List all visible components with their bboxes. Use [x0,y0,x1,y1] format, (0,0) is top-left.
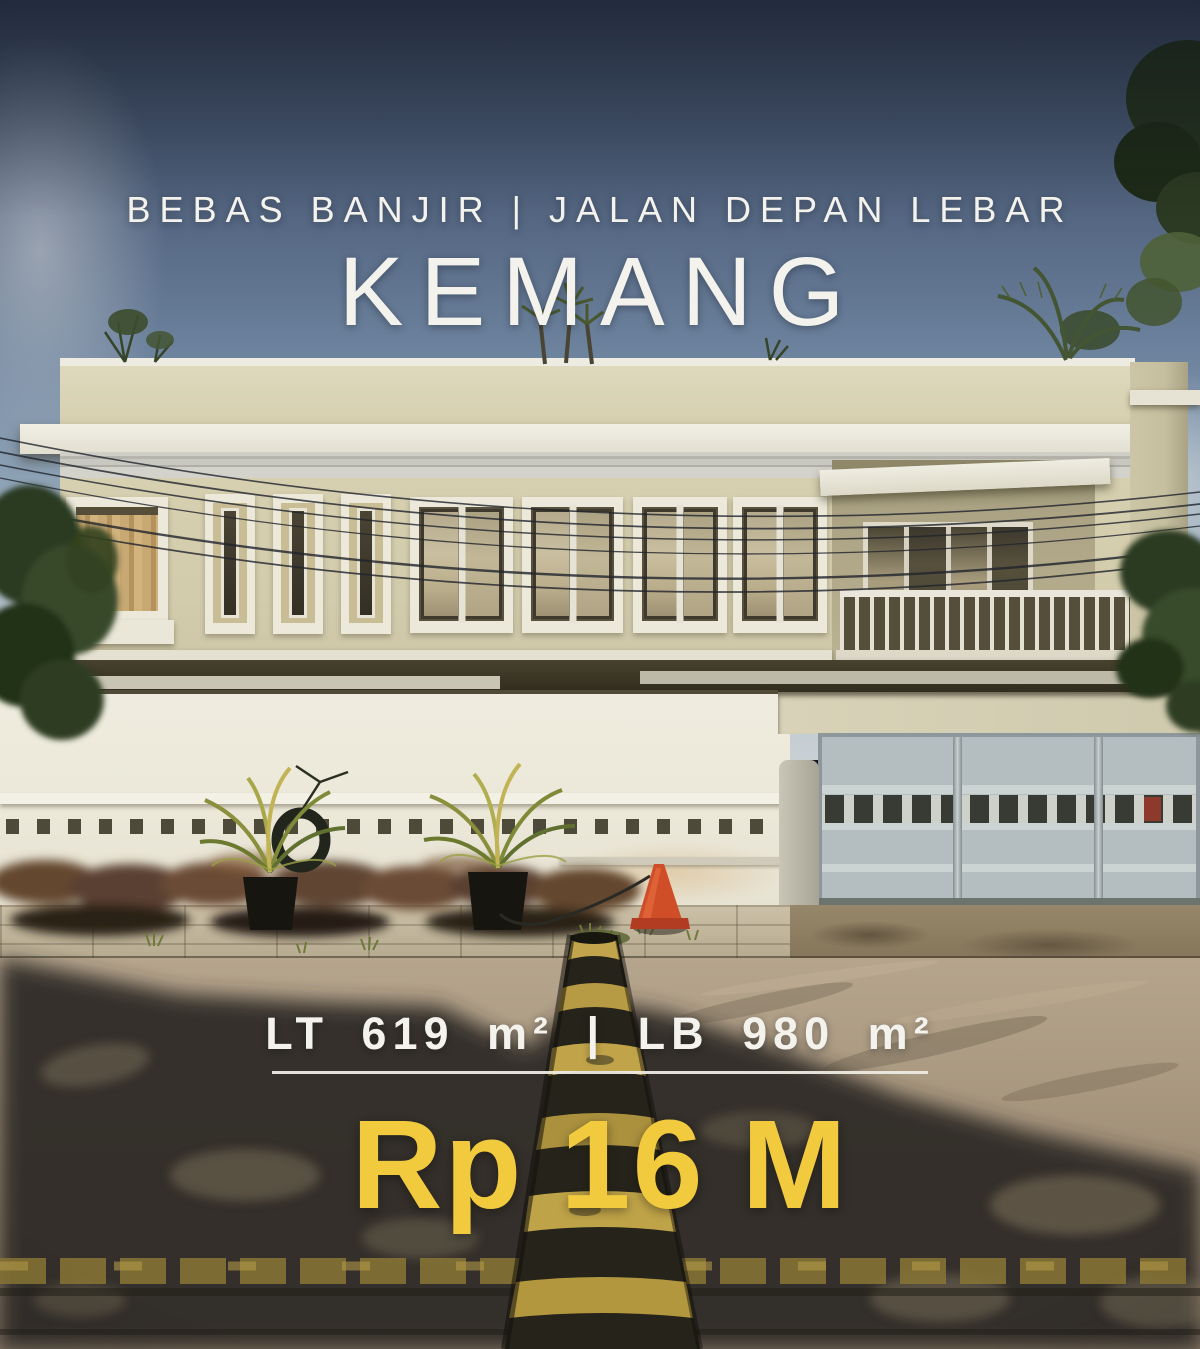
curtain-pane [684,512,714,616]
floor-slab-ledge [60,650,832,660]
fence-groove [560,857,790,865]
gate-rail [822,785,1196,794]
window [341,494,391,634]
curtain-pane [747,512,777,616]
price-text: Rp 16 M [0,1092,1200,1237]
divider-line [272,1071,928,1074]
dirt-strip [790,905,1200,961]
curtain-pane [784,512,814,616]
window [633,497,727,633]
gate-divider [1094,737,1103,909]
curtain-pane [465,512,499,616]
curtain-pane [647,512,677,616]
window-glass [289,508,307,618]
gate-rail [822,823,1196,830]
window [733,497,827,633]
gate-red-pane [1144,797,1161,821]
property-poster: BEBAS BANJIR | JALAN DEPAN LEBAR KEMANG … [0,0,1200,1349]
fence-stain [560,840,790,906]
window [273,494,323,634]
window-glass [221,508,239,618]
window-mullion [458,505,465,623]
window-mullion [677,505,684,623]
window-mullion [569,505,576,623]
gate-rail [822,864,1196,872]
window [66,497,168,623]
window-glass [357,508,375,618]
curtain-pane [576,512,609,616]
wing-fascia [1130,390,1200,405]
specs-text: LT 619 m² | LB 980 m² [0,1008,1200,1060]
tagline-text: BEBAS BANJIR | JALAN DEPAN LEBAR [0,189,1200,231]
fence-vent-row [6,819,770,834]
window-mullion [777,505,784,623]
gate-header-beam [778,688,1200,734]
window [410,497,513,633]
house-right-wing [1130,362,1188,696]
cornice-ledge [20,424,1142,454]
window-curtain [76,507,158,611]
driveway-gate [818,733,1200,909]
gate-window-strip [822,795,1196,823]
gate-post [779,760,819,915]
window [205,494,255,634]
balcony-railing [840,597,1132,650]
carport-fascia [60,676,500,689]
balcony-railing-top [840,590,1132,597]
location-title: KEMANG [0,236,1200,348]
gate-divider [953,737,962,909]
carport-fascia [640,671,1160,684]
roof-parapet [60,366,1135,426]
curtain-pane [536,512,569,616]
window [522,497,623,633]
curtain-pane [424,512,458,616]
fence-molding [0,793,790,804]
window-sill [62,620,174,644]
sidewalk-pavers [0,905,790,961]
